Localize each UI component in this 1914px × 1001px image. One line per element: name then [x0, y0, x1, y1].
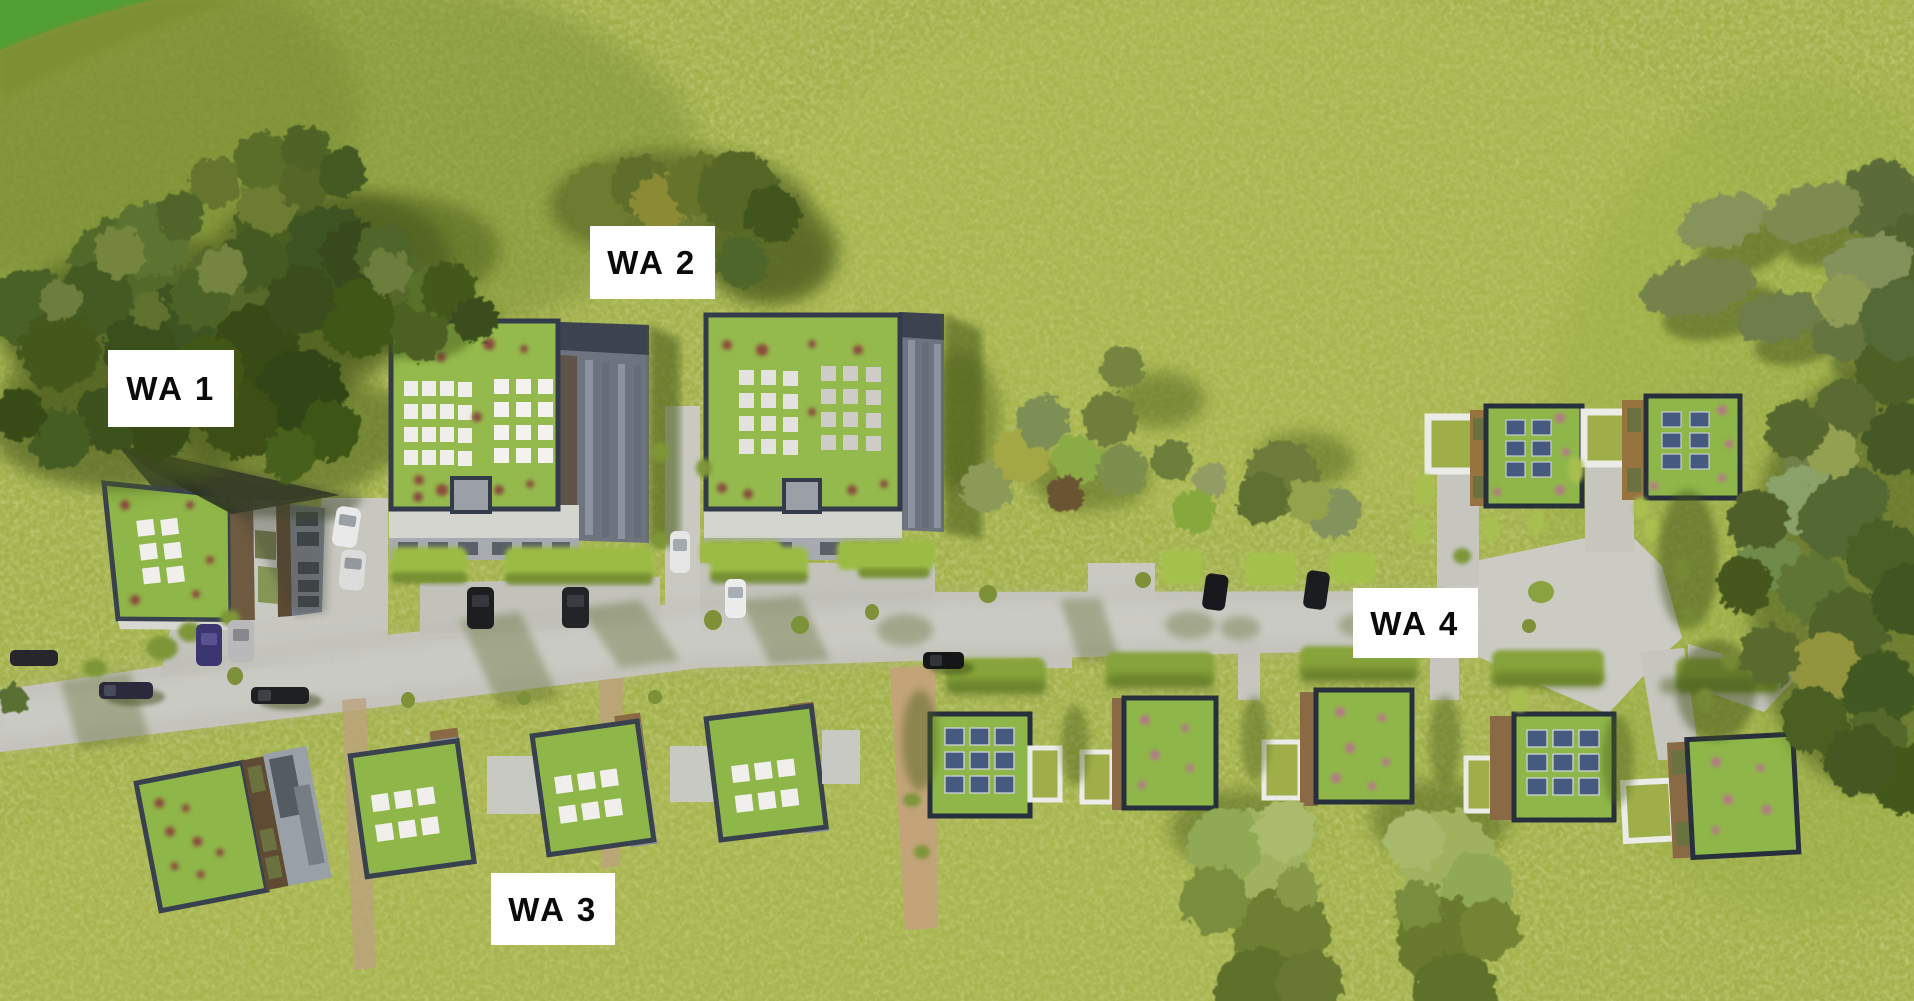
svg-text:WA 3: WA 3	[508, 891, 597, 928]
svg-text:WA 4: WA 4	[1370, 605, 1459, 642]
svg-text:WA 2: WA 2	[607, 244, 696, 281]
svg-text:WA 1: WA 1	[126, 370, 215, 407]
